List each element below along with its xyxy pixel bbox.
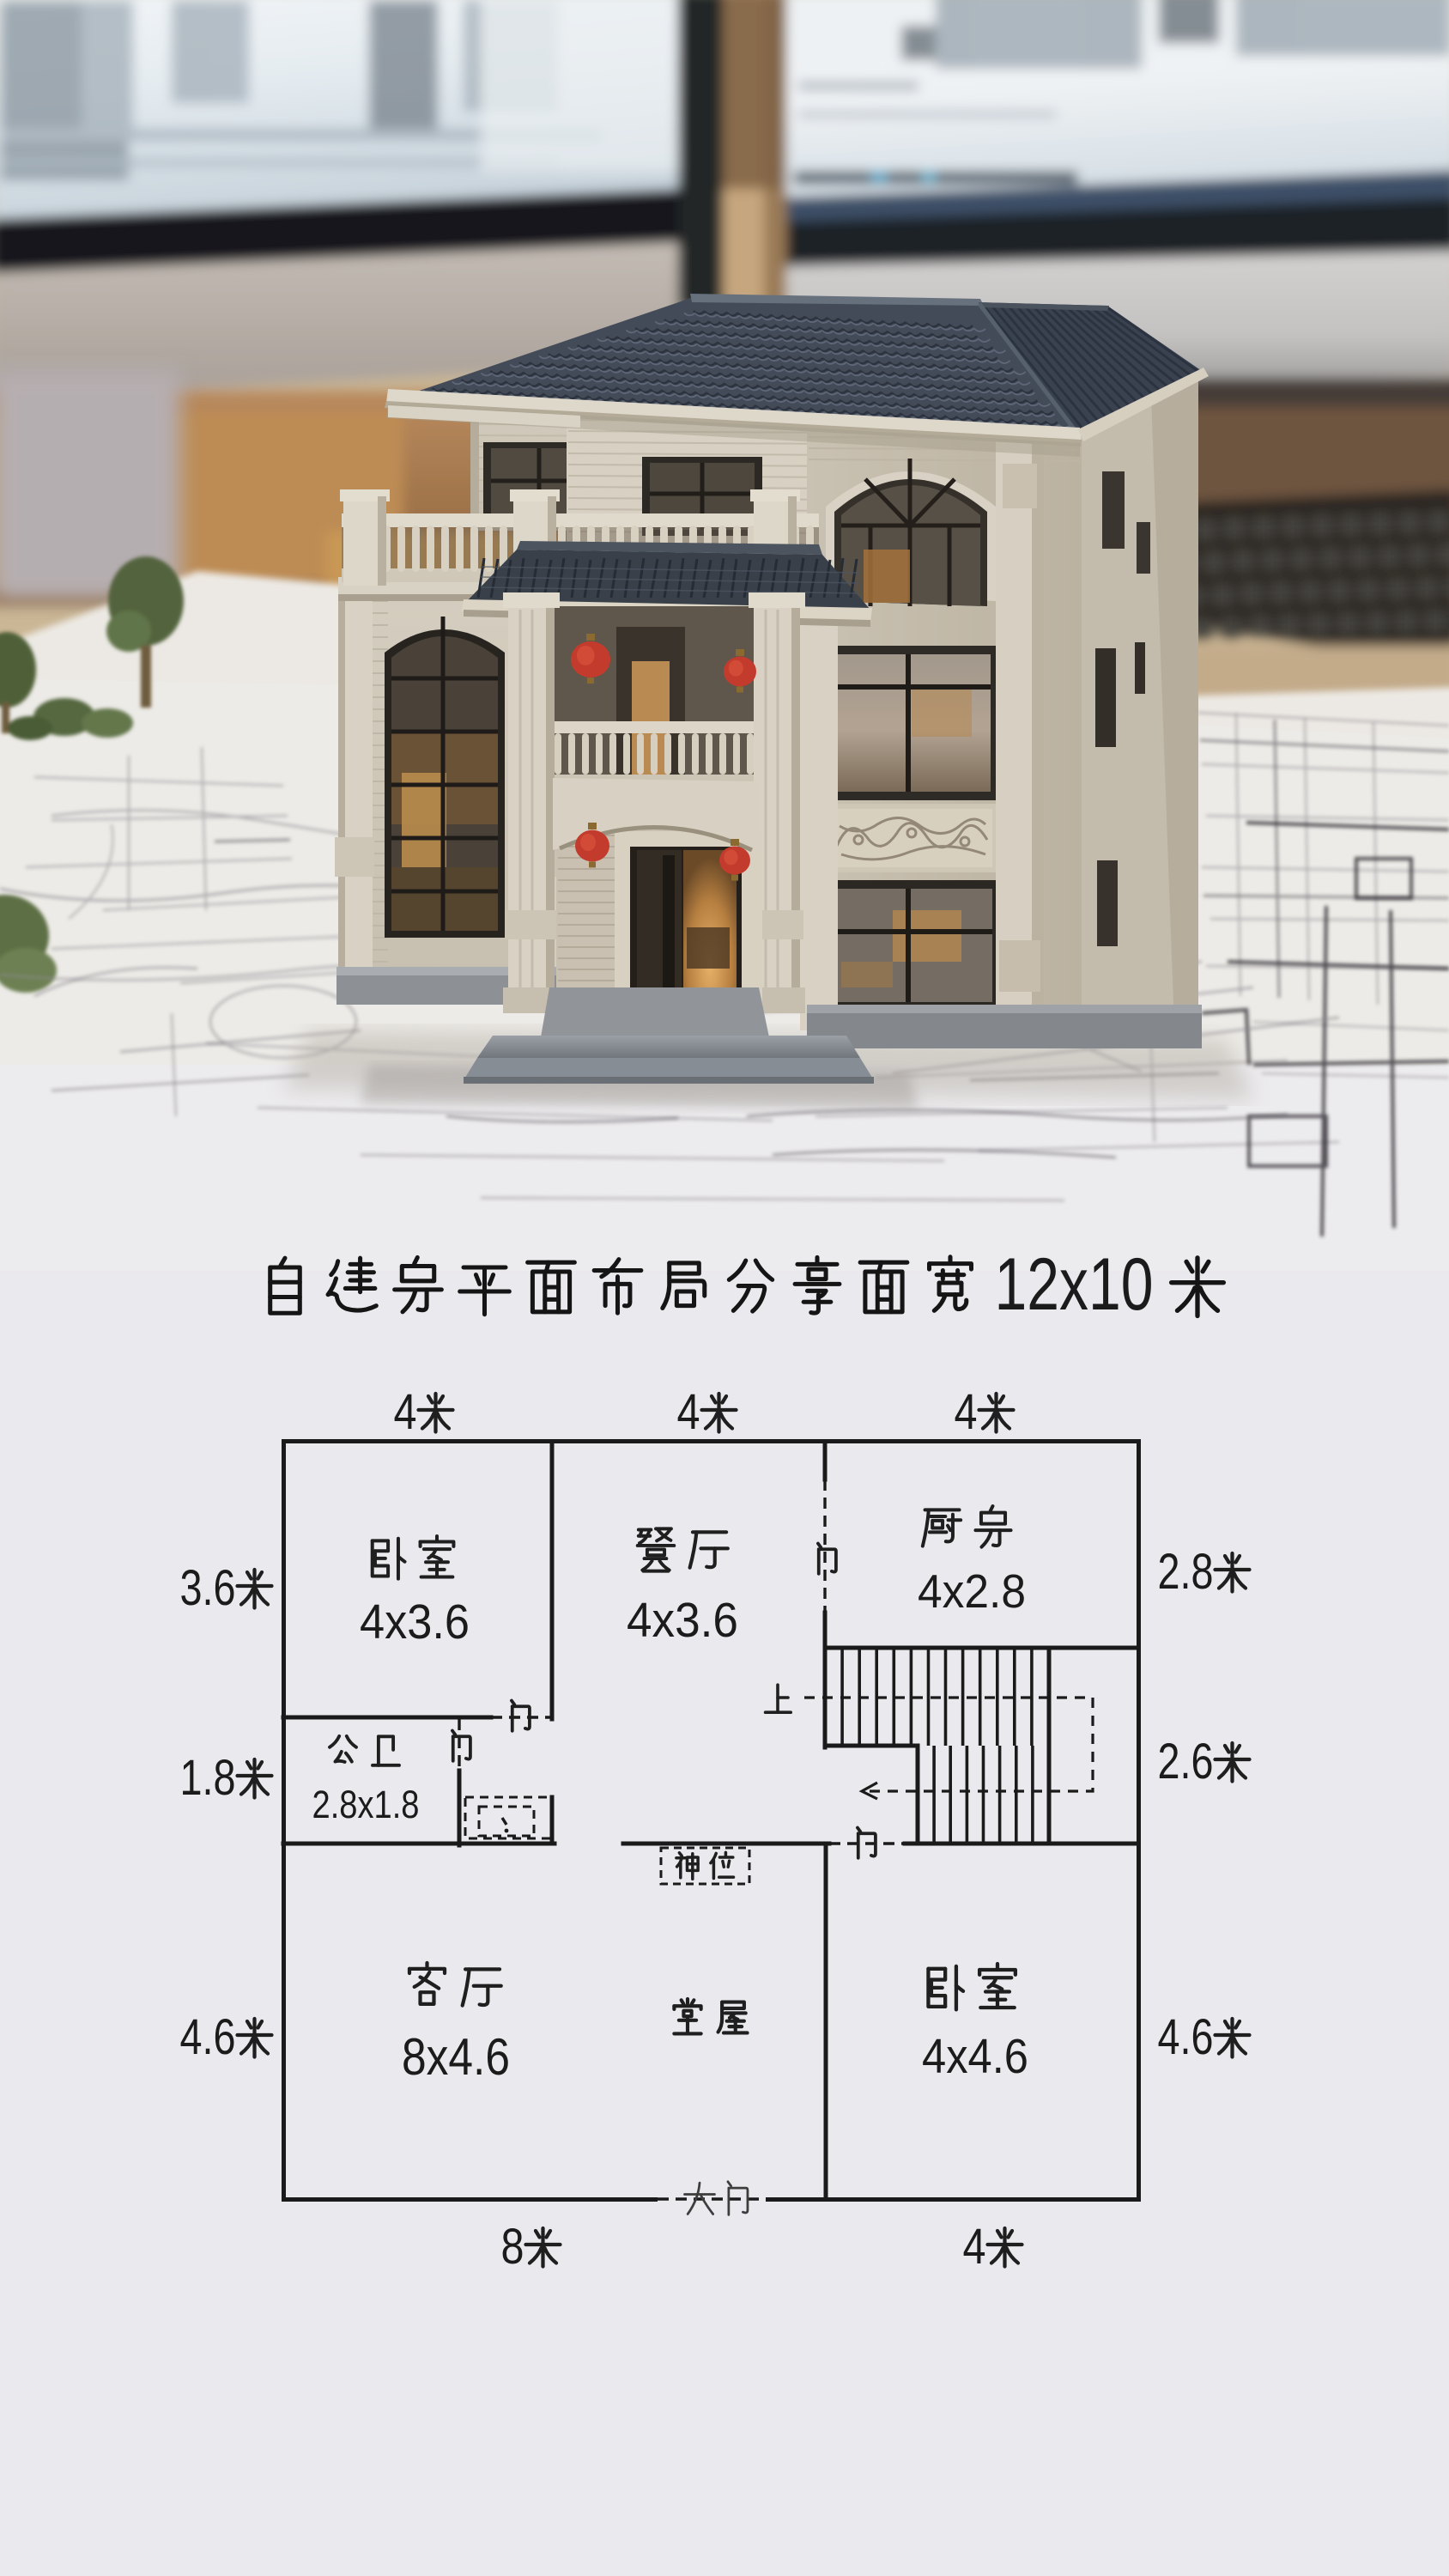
svg-text:8x4.6: 8x4.6 [402, 2028, 510, 2086]
svg-text:4: 4 [394, 1384, 417, 1440]
svg-text:2.8: 2.8 [1158, 1544, 1214, 1600]
svg-text:4.6: 4.6 [1158, 2009, 1214, 2065]
svg-text:2.8x1.8: 2.8x1.8 [312, 1783, 420, 1826]
svg-text:4x3.6: 4x3.6 [627, 1593, 738, 1648]
svg-text:4x2.8: 4x2.8 [918, 1564, 1026, 1618]
svg-text:4.6: 4.6 [180, 2009, 236, 2065]
svg-text:1.8: 1.8 [180, 1750, 236, 1806]
svg-text:8: 8 [501, 2219, 524, 2275]
svg-text:4x3.6: 4x3.6 [360, 1595, 470, 1649]
svg-text:3.6: 3.6 [180, 1560, 236, 1616]
svg-text:2.6: 2.6 [1158, 1734, 1214, 1789]
svg-text:4: 4 [955, 1384, 978, 1440]
svg-text:4: 4 [963, 2219, 986, 2275]
svg-text:4x4.6: 4x4.6 [922, 2029, 1028, 2084]
svg-text:4: 4 [677, 1384, 700, 1440]
svg-text:12x10: 12x10 [995, 1243, 1154, 1326]
